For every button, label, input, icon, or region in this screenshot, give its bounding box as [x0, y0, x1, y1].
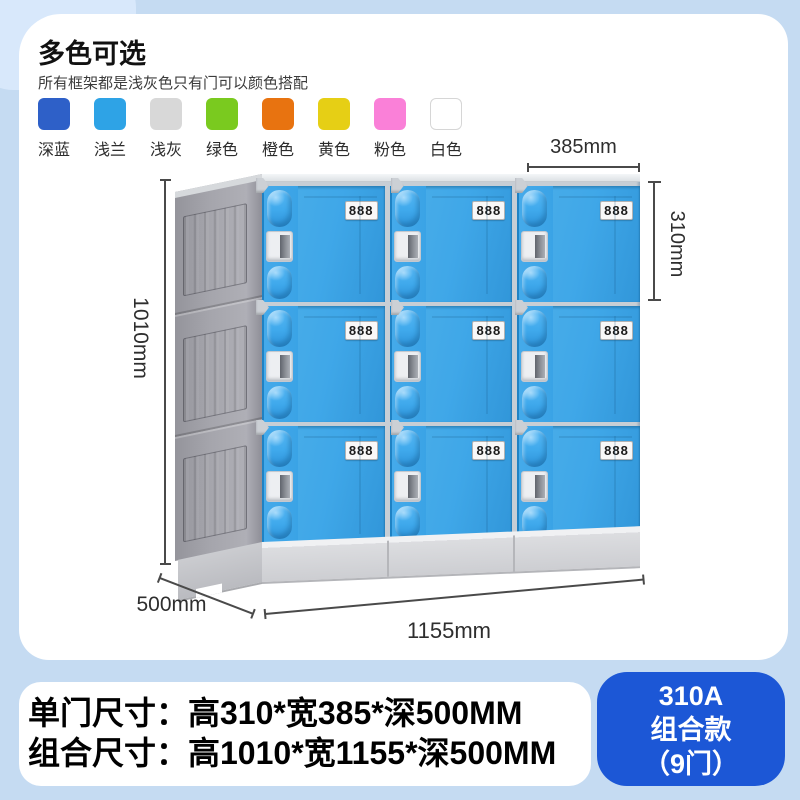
door-hinge-pill	[522, 386, 547, 419]
door-hinge-pill	[267, 190, 292, 227]
side-section-seam	[175, 295, 262, 315]
door-hinge-pill	[267, 266, 292, 299]
dim-label-door-width: 385mm	[527, 136, 640, 159]
locker-door: 888	[517, 186, 640, 302]
locker-door-row: 888888888	[262, 426, 640, 542]
locker-door: 888	[390, 306, 513, 422]
door-groove	[432, 436, 505, 438]
door-hinge-pill	[395, 430, 420, 467]
door-number-plate: 888	[600, 201, 633, 220]
locker-illustration: 888888888888888888888888888 1010mm 385mm…	[19, 14, 788, 660]
door-handle	[266, 231, 293, 262]
door-number-plate: 888	[472, 321, 505, 340]
door-hinge-pill	[267, 386, 292, 419]
model-badge: 310A 组合款 （9门）	[597, 672, 785, 786]
dim-label-door-height: 310mm	[666, 188, 688, 300]
door-handle-slot	[408, 235, 418, 258]
door-number-plate: 888	[345, 321, 378, 340]
door-groove	[486, 436, 488, 534]
door-number-plate: 888	[600, 321, 633, 340]
door-handle	[521, 351, 548, 382]
locker-top-sliver	[262, 174, 640, 182]
door-groove	[304, 316, 377, 318]
side-vent-panel	[183, 325, 247, 422]
door-number-plate: 888	[472, 201, 505, 220]
door-groove	[304, 436, 377, 438]
door-groove	[359, 436, 361, 534]
dim-label-total-width: 1155mm	[384, 618, 514, 644]
door-handle	[521, 471, 548, 502]
door-groove	[359, 196, 361, 294]
dim-line-total-height	[164, 180, 166, 564]
door-handle	[394, 231, 421, 262]
product-card: 多色可选 所有框架都是浅灰色只有门可以颜色搭配 深蓝浅兰浅灰绿色橙色黄色粉色白色…	[19, 14, 788, 660]
door-handle-slot	[280, 355, 290, 378]
door-handle	[394, 471, 421, 502]
door-hinge-pill	[267, 506, 292, 539]
door-groove	[486, 196, 488, 294]
base-seam	[387, 541, 389, 577]
door-hinge-pill	[395, 190, 420, 227]
door-groove	[486, 316, 488, 414]
door-hinge-pill	[395, 310, 420, 347]
base-seam	[513, 535, 515, 571]
side-vent-panel	[183, 203, 247, 296]
door-hinge-pill	[267, 430, 292, 467]
badge-style: 组合款	[597, 713, 785, 747]
door-hinge-pill	[395, 506, 420, 539]
door-handle	[266, 471, 293, 502]
locker-door: 888	[262, 426, 385, 542]
door-handle-slot	[408, 475, 418, 498]
dim-label-total-height: 1010mm	[128, 288, 152, 388]
locker-door: 888	[517, 306, 640, 422]
door-hinge-pill	[522, 190, 547, 227]
badge-doors: （9门）	[597, 747, 785, 781]
door-hinge-pill	[522, 430, 547, 467]
door-groove	[559, 196, 632, 198]
locker-door: 888	[262, 186, 385, 302]
locker-door: 888	[390, 426, 513, 542]
door-handle-slot	[408, 355, 418, 378]
dim-line-door-height	[653, 182, 655, 300]
door-handle	[266, 351, 293, 382]
spec-bar: 单门尺寸：高310*宽385*深500MM 组合尺寸：高1010*宽1155*深…	[19, 682, 591, 786]
door-handle-slot	[280, 475, 290, 498]
locker-door: 888	[390, 186, 513, 302]
locker-door: 888	[517, 426, 640, 542]
door-hinge-pill	[522, 266, 547, 299]
door-handle-slot	[535, 475, 545, 498]
badge-model: 310A	[597, 679, 785, 713]
dim-line-door-width	[527, 166, 640, 168]
door-hinge-pill	[267, 310, 292, 347]
door-groove	[432, 196, 505, 198]
door-groove	[304, 196, 377, 198]
door-number-plate: 888	[472, 441, 505, 460]
door-groove	[614, 436, 616, 534]
door-handle	[394, 351, 421, 382]
door-groove	[559, 436, 632, 438]
door-hinge-pill	[395, 386, 420, 419]
locker-door: 888	[262, 306, 385, 422]
locker-top-edge	[175, 174, 262, 198]
door-groove	[359, 316, 361, 414]
spec-line-combined: 组合尺寸：高1010*宽1155*深500MM	[28, 733, 591, 773]
door-hinge-pill	[395, 266, 420, 299]
door-groove	[614, 316, 616, 414]
locker-door-row: 888888888	[262, 306, 640, 422]
dim-label-depth: 500mm	[124, 593, 219, 617]
door-number-plate: 888	[345, 441, 378, 460]
side-vent-panel	[183, 445, 247, 542]
locker-front-face: 888888888888888888888888888	[262, 174, 640, 542]
locker-door-row: 888888888	[262, 186, 640, 302]
door-number-plate: 888	[345, 201, 378, 220]
door-handle-slot	[535, 355, 545, 378]
door-number-plate: 888	[600, 441, 633, 460]
door-handle	[521, 231, 548, 262]
door-groove	[432, 316, 505, 318]
locker-side-panel	[175, 174, 262, 561]
dim-line-total-width	[265, 579, 644, 615]
door-hinge-pill	[522, 310, 547, 347]
door-handle-slot	[280, 235, 290, 258]
door-handle-slot	[535, 235, 545, 258]
door-groove	[559, 316, 632, 318]
door-groove	[614, 196, 616, 294]
spec-line-single-door: 单门尺寸：高310*宽385*深500MM	[28, 693, 591, 733]
